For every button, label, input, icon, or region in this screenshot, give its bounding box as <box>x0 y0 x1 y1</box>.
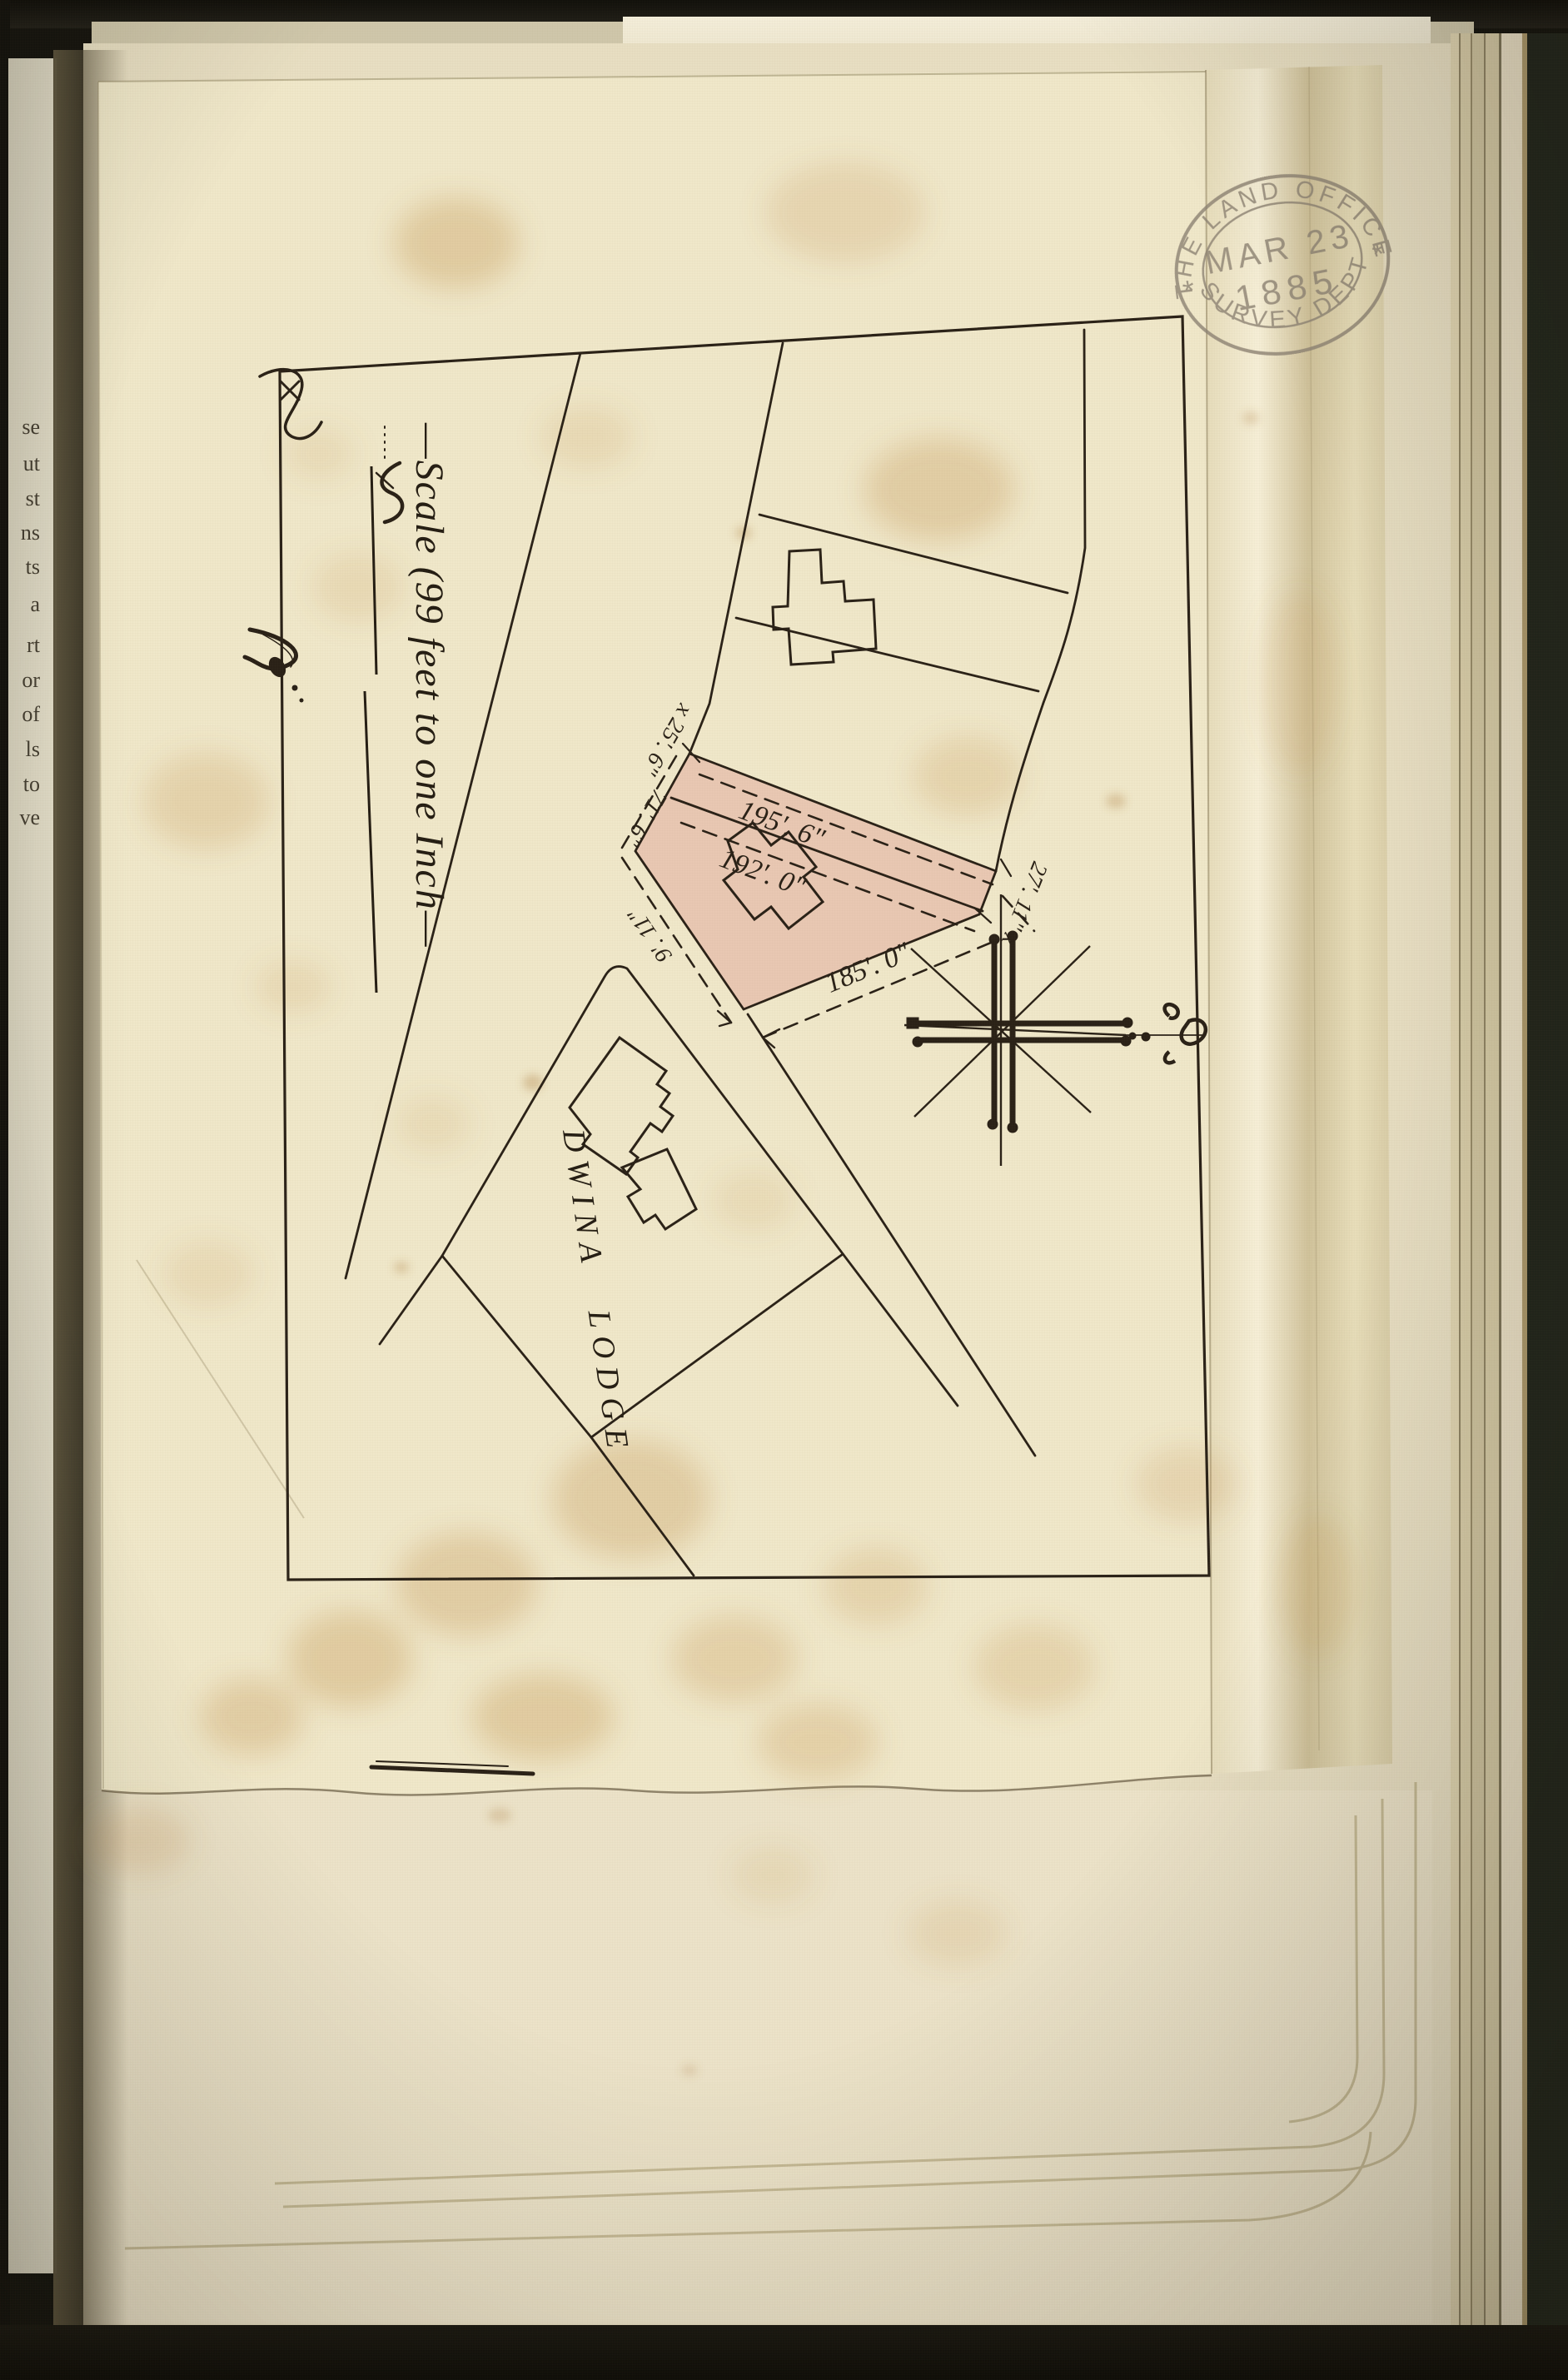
survey-plat-artwork: —Scale (99 feet to one Inch— 195'. 6" 19… <box>0 0 1568 2380</box>
book-spread-scan: se ut st ns ts a rt or of ls to ve <box>0 0 1568 2380</box>
scale-note: —Scale (99 feet to one Inch— <box>407 422 451 949</box>
